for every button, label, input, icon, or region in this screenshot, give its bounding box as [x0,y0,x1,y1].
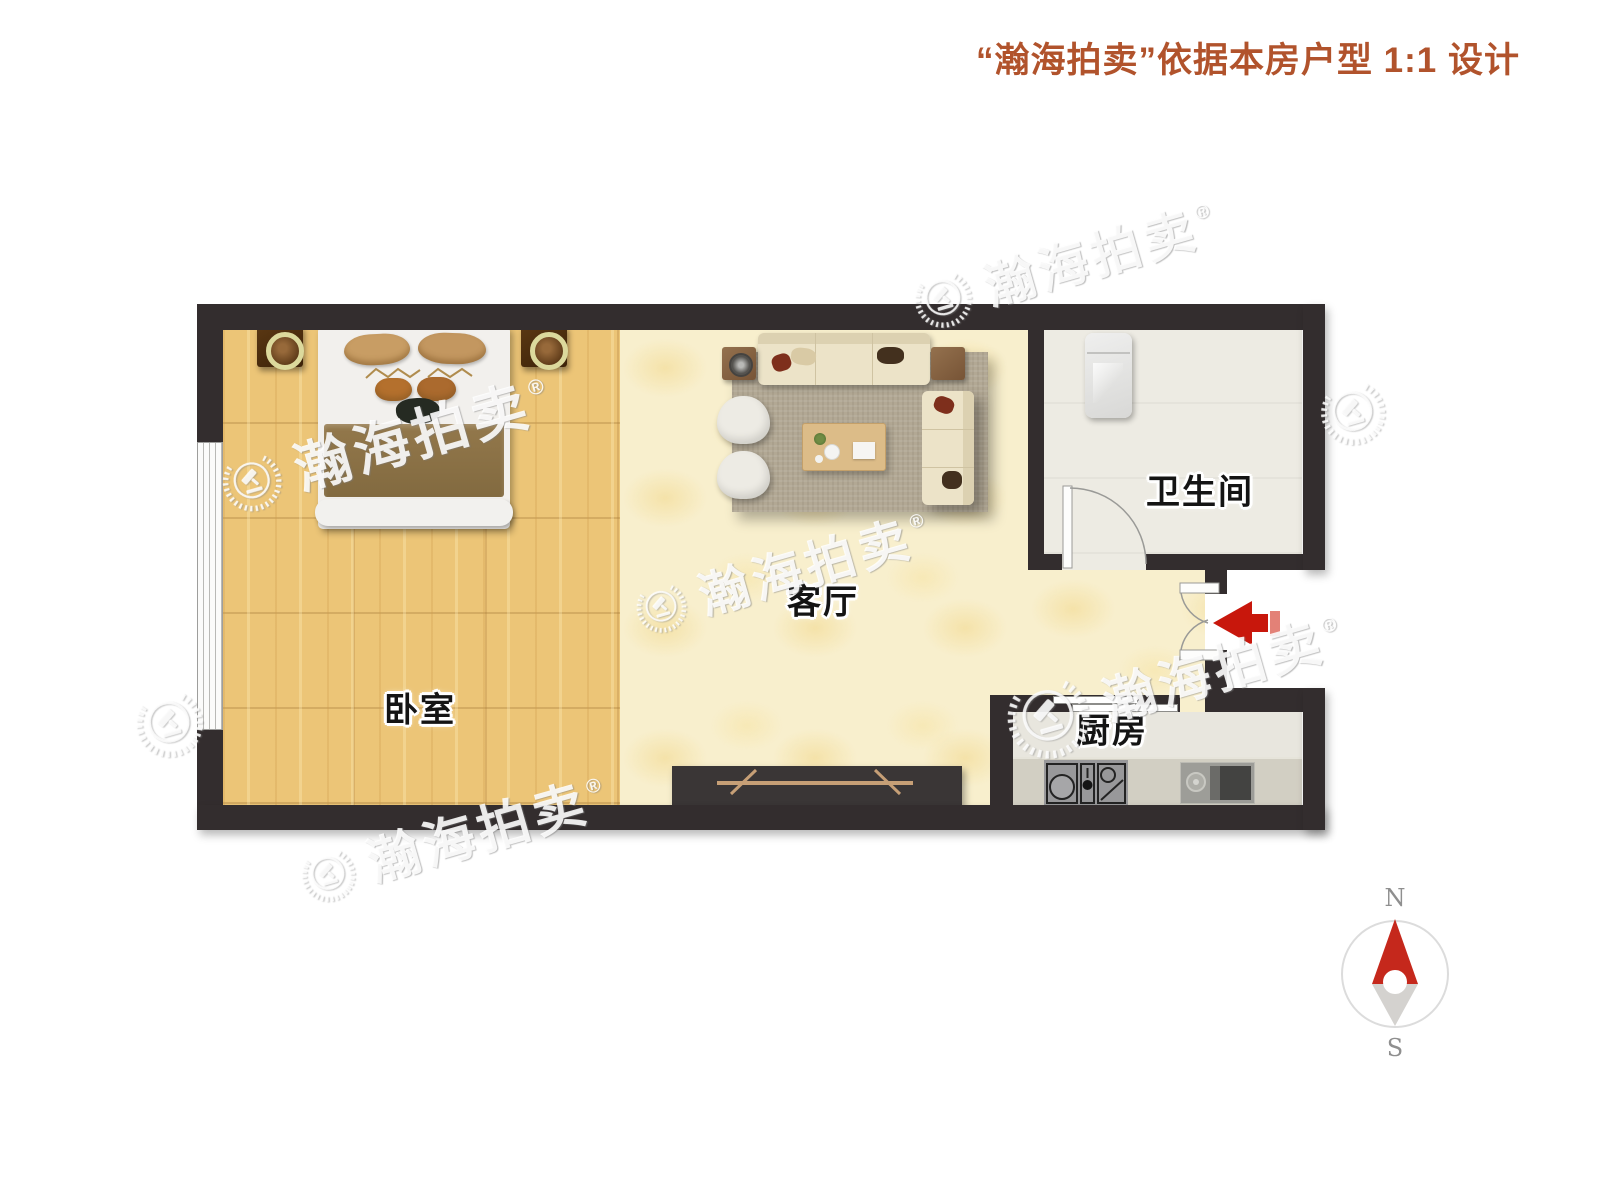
side-table-left [722,347,756,380]
side-table-right [931,347,965,380]
throw-pillow-red [770,351,793,373]
sofa-seam [872,333,873,385]
wall-entry-stub-bottom [1205,650,1227,712]
bed-footboard [315,499,513,526]
pillow [375,378,412,401]
coffee-table [802,423,886,471]
wall-bathroom-bottom-left [1028,554,1062,570]
compass: N S [1330,872,1460,1064]
nightstand-right [521,325,567,367]
bathroom-doorway-gap [1062,554,1146,570]
pillow [343,332,411,366]
bathroom-label: 卫生间 [1146,465,1254,514]
sofa-main [758,333,930,385]
nightstand-left [257,325,303,367]
floor-plan-page: “瀚海拍卖”依据本房户型 1:1 设计 [0,0,1600,1200]
compass-hub [1383,970,1407,994]
washing-machine [1085,333,1132,418]
page-title: “瀚海拍卖”依据本房户型 1:1 设计 [976,32,1520,83]
wall-kitchen-left [990,695,1013,830]
throw-pillow-beige [790,346,817,366]
sofa-seam [922,467,974,468]
wall-left-upper [197,304,223,442]
compass-south-label: S [1387,1034,1403,1062]
living-room-label: 客厅 [787,575,859,624]
magazine [853,442,875,459]
bathroom-floor [1044,329,1302,554]
gas-stove [1044,760,1128,807]
entrance-arrow-icon [1213,601,1268,645]
table-lamp-icon [729,353,753,377]
bed-clothing-item [395,396,441,425]
sofa-back [963,391,974,505]
tv-stand [672,766,962,809]
wall-top [197,304,1325,330]
wall-bathroom-left [1028,304,1044,570]
throw-pillow-dark [942,471,962,489]
bed-blanket [324,424,504,497]
double-bed [318,326,510,529]
washer-sheen [1093,363,1123,403]
wall-entry-stub-top [1205,570,1227,594]
armchair-bottom [717,451,770,499]
washer-lid-seam [1087,352,1130,354]
wall-bottom [197,805,1325,830]
pillow [417,332,486,365]
cup-icon [815,455,823,463]
wall-right-lower [1303,688,1325,830]
sofa-chaise [922,391,974,505]
auction-wreath-gavel-icon [292,840,366,914]
compass-north-label: N [1385,884,1406,912]
entrance-arrow-tail [1270,611,1280,636]
throw-pillow-red [932,394,956,416]
sofa-seam [922,429,974,430]
wall-bathroom-bottom-right [1146,554,1325,570]
entry-hall-floor [1028,570,1205,712]
throw-pillow-dark [877,347,904,364]
wall-right-upper [1303,304,1325,570]
bedroom-label: 卧室 [384,683,456,732]
lamp-icon [266,332,304,370]
kitchen-sink [1180,762,1255,804]
plate-icon [824,444,840,460]
lamp-icon [530,332,568,370]
window-left [197,442,223,730]
plant-icon [814,433,826,445]
armchair-top [717,396,770,444]
kitchen-label: 厨房 [1076,704,1148,753]
sofa-back [758,333,930,344]
